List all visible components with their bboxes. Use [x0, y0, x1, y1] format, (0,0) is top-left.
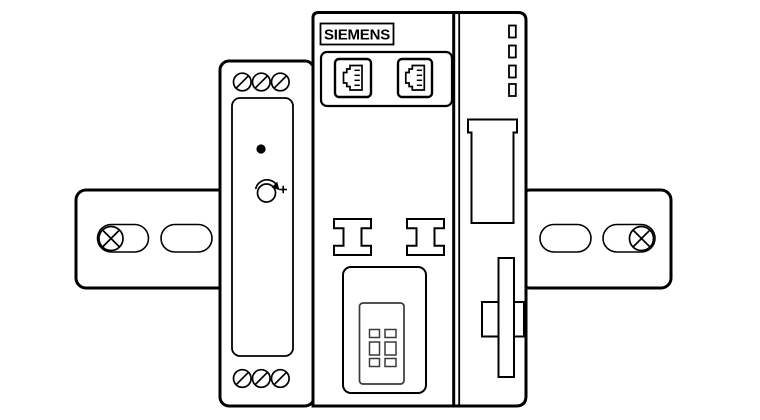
rj45-port-1-icon	[335, 59, 371, 97]
mounting-screw-icon	[99, 227, 123, 251]
power-module	[220, 61, 314, 406]
brand-plate: SIEMENS	[321, 24, 394, 45]
device-diagram: SIEMENS	[0, 0, 760, 420]
led-indicator-icon	[509, 66, 516, 78]
rail-slot	[540, 225, 591, 253]
led-indicator-icon	[509, 84, 516, 96]
main-module: SIEMENS	[313, 13, 526, 407]
diagram-canvas: SIEMENS	[0, 0, 760, 420]
ethernet-port-panel	[321, 52, 452, 106]
screw-terminals-top-icon	[234, 73, 290, 91]
led-indicator-icon	[509, 46, 516, 58]
led-indicator-icon	[509, 26, 516, 38]
din-rail-right	[520, 190, 671, 288]
mounting-screw-icon	[630, 227, 654, 251]
status-led-icon	[256, 144, 265, 153]
connector-panel	[343, 267, 426, 393]
connector-body	[360, 303, 405, 384]
slot-opening-icon	[468, 120, 517, 224]
rail-slot	[161, 225, 212, 253]
brand-label: SIEMENS	[324, 27, 390, 44]
din-rail-left	[76, 190, 230, 288]
rj45-port-2-icon	[398, 59, 432, 97]
screw-terminals-bottom-icon	[234, 370, 290, 388]
front-panel	[232, 98, 293, 356]
